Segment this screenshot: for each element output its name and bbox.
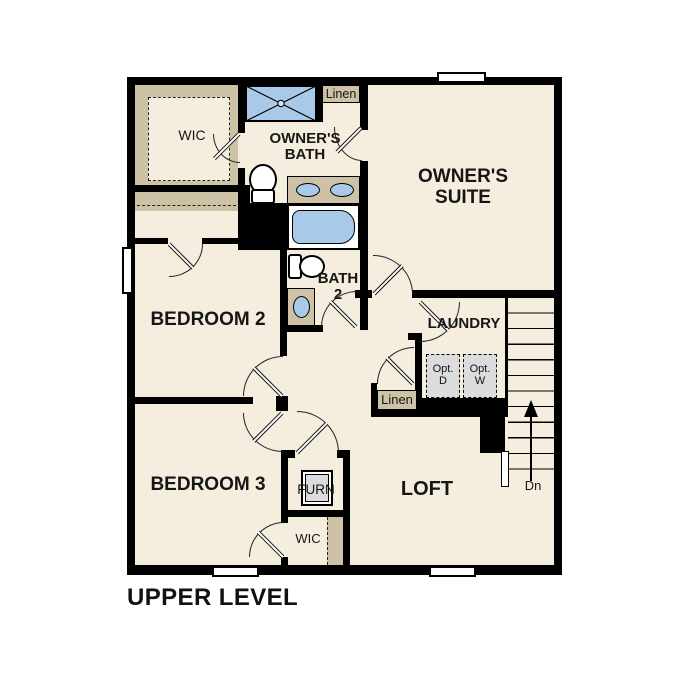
opt-dryer-line1: Opt. xyxy=(427,363,459,375)
sink xyxy=(293,296,310,318)
stairs-arrow-head xyxy=(524,400,538,417)
wall xyxy=(127,77,562,85)
window xyxy=(437,72,486,83)
wall xyxy=(360,85,368,130)
plan-title: UPPER LEVEL xyxy=(127,584,298,612)
window xyxy=(122,247,133,294)
sink xyxy=(296,183,320,197)
room-label-furn: FURN xyxy=(294,483,338,498)
wall xyxy=(127,565,562,575)
bathtub xyxy=(292,210,355,244)
wall xyxy=(127,77,135,575)
wic-bedroom3-shelf xyxy=(327,517,343,565)
wall xyxy=(343,453,350,565)
room-label-wic-bedroom3: WIC xyxy=(289,532,327,546)
wall xyxy=(480,417,505,453)
wall xyxy=(554,77,562,575)
wall xyxy=(288,510,343,517)
toilet-tank xyxy=(251,189,275,204)
wall xyxy=(238,85,245,133)
shelf-dashed-line xyxy=(137,205,236,206)
linen-top-label: Linen xyxy=(323,86,359,102)
wall xyxy=(280,242,287,332)
wall xyxy=(281,557,288,565)
stairs-down-label: Dn xyxy=(520,479,546,493)
window xyxy=(429,566,476,577)
wall xyxy=(280,325,323,332)
wall xyxy=(276,396,288,411)
stair-railing xyxy=(501,451,509,487)
wall xyxy=(202,238,245,244)
opt-dryer-line2: D xyxy=(427,375,459,387)
optional-washer-box: Opt. W xyxy=(463,354,497,398)
wall xyxy=(360,161,368,330)
floor-plan: Linen Opt. D Opt. W Linen xyxy=(0,0,687,687)
optional-dryer-box: Opt. D xyxy=(426,354,460,398)
wall xyxy=(280,332,287,356)
room-label-owners-suite: OWNER'S SUITE xyxy=(411,167,515,208)
room-label-bedroom3: BEDROOM 3 xyxy=(140,475,276,496)
linen-closet-hall: Linen xyxy=(377,390,417,410)
wall xyxy=(281,450,288,523)
room-label-wic-owner: WIC xyxy=(162,128,222,143)
room-label-loft: LOFT xyxy=(396,479,458,501)
sink xyxy=(330,183,354,197)
wall xyxy=(135,238,168,244)
wall xyxy=(281,450,295,458)
room-label-owners-bath: OWNER'S BATH xyxy=(257,131,353,163)
room-label-bedroom2: BEDROOM 2 xyxy=(140,310,276,331)
room-label-laundry: LAUNDRY xyxy=(419,316,509,332)
wall xyxy=(135,185,245,192)
stairs-arrow-line xyxy=(530,415,532,481)
room-label-bath2: BATH 2 xyxy=(314,271,362,303)
linen-hall-label: Linen xyxy=(378,391,416,409)
wall xyxy=(371,410,508,417)
shower xyxy=(245,85,317,122)
bedroom2-closet-shelf xyxy=(135,192,238,211)
opt-washer-line1: Opt. xyxy=(464,363,496,375)
wall xyxy=(135,397,253,404)
opt-washer-line2: W xyxy=(464,375,496,387)
window xyxy=(212,566,259,577)
wall xyxy=(412,290,562,298)
linen-closet-top: Linen xyxy=(322,85,360,103)
wall xyxy=(415,398,505,411)
